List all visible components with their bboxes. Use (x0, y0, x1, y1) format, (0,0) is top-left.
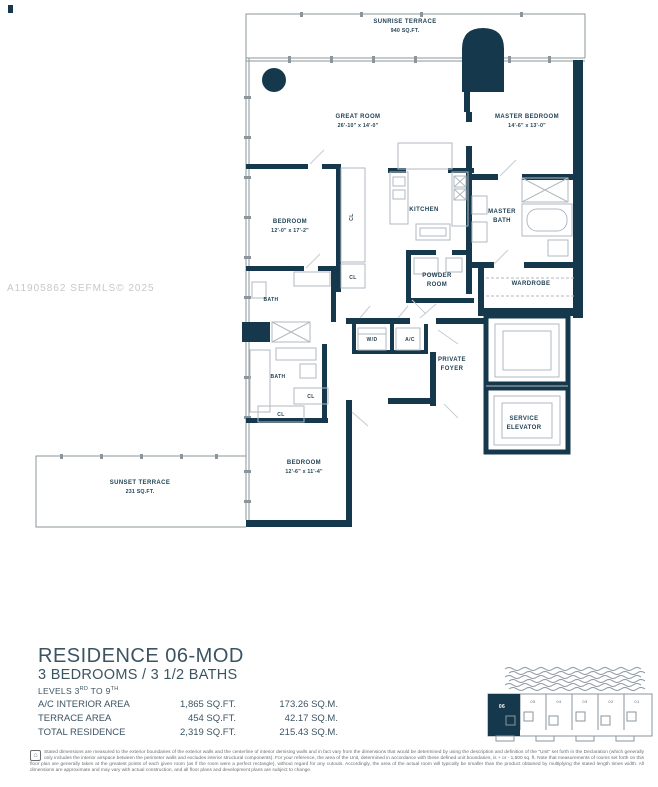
row-label: A/C INTERIOR AREA (38, 699, 156, 713)
building-outline (488, 694, 652, 741)
master-bedroom-label: MASTER BEDROOM (495, 114, 559, 120)
disclaimer: ⌂Stated dimensions are measured to the e… (30, 750, 644, 774)
floor-plan: SUNRISE TERRACE 940 SQ.FT. GREAT ROOM 26… (0, 0, 658, 560)
master-bath-label-1: MASTER (488, 209, 516, 215)
area-table: A/C INTERIOR AREA 1,865 SQ.FT. 173.26 SQ… (38, 699, 338, 741)
table-row: A/C INTERIOR AREA 1,865 SQ.FT. 173.26 SQ… (38, 699, 338, 713)
unit-03-label: 03 (582, 699, 588, 704)
row-label: TOTAL RESIDENCE (38, 727, 156, 741)
bedroom2-dims: 12'-0" x 17'-2" (271, 228, 309, 234)
row-sqft: 1,865 SQ.FT. (156, 699, 236, 713)
bedroom2-label: BEDROOM (273, 219, 307, 225)
service-elevator-label-1: SERVICE (509, 416, 538, 422)
residence-subtitle: 3 BEDROOMS / 3 1/2 BATHS (38, 667, 244, 684)
unit-05-label: 05 (530, 699, 536, 704)
bedroom3-label: BEDROOM (287, 460, 321, 466)
unit-02-label: 02 (608, 699, 614, 704)
sunset-terrace-label: SUNSET TERRACE (110, 480, 171, 486)
levels-sup-1: RD (80, 686, 89, 692)
disclaimer-text: Stated dimensions are measured to the ex… (30, 750, 644, 773)
table-row: TERRACE AREA 454 SQ.FT. 42.17 SQ.M. (38, 713, 338, 727)
closet-label-4: CL (277, 412, 284, 418)
residence-levels: LEVELS 3RD TO 9TH (38, 686, 244, 696)
kitchen-label: KITCHEN (409, 207, 438, 213)
highlighted-unit-06 (488, 694, 520, 736)
washer-dryer-label: W/D (367, 337, 378, 343)
powder-room-label-2: ROOM (427, 282, 447, 288)
key-plan-unit-labels: 06 05 04 03 02 01 (499, 699, 640, 710)
levels-text-2: TO 9 (88, 686, 110, 696)
title-block: RESIDENCE 06-MOD 3 BEDROOMS / 3 1/2 BATH… (38, 645, 244, 696)
water-waves (505, 668, 645, 691)
unit-04-label: 04 (556, 699, 562, 704)
great-room-label: GREAT ROOM (336, 114, 381, 120)
sunrise-terrace-label: SUNRISE TERRACE (373, 19, 436, 25)
bath2-label: BATH (270, 374, 285, 380)
row-sqft: 2,319 SQ.FT. (156, 727, 236, 741)
row-sqm: 42.17 SQ.M. (236, 713, 338, 727)
ac-closet-label: A/C (405, 337, 415, 343)
row-sqft: 454 SQ.FT. (156, 713, 236, 727)
levels-text-1: LEVELS 3 (38, 686, 80, 696)
unit-06-label: 06 (499, 704, 505, 710)
master-bedroom-dims: 14'-6" x 13'-0" (508, 123, 546, 129)
row-label: TERRACE AREA (38, 713, 156, 727)
unit-01-label: 01 (634, 699, 640, 704)
wardrobe-label: WARDROBE (512, 281, 551, 287)
table-row: TOTAL RESIDENCE 2,319 SQ.FT. 215.43 SQ.M… (38, 727, 338, 741)
equal-housing-icon: ⌂ (30, 750, 41, 761)
closet-label-2: CL (349, 275, 356, 281)
sunset-terrace-area: 231 SQ.FT. (126, 489, 155, 495)
great-room-dims: 26'-10" x 14'-0" (338, 123, 379, 129)
levels-sup-2: TH (111, 686, 119, 692)
bedroom3-dims: 12'-6" x 11'-4" (285, 469, 323, 475)
row-sqm: 173.26 SQ.M. (236, 699, 338, 713)
private-foyer-label-1: PRIVATE (438, 357, 466, 363)
service-elevator-label-2: ELEVATOR (507, 425, 542, 431)
closet-label-3: CL (307, 394, 314, 400)
residence-title: RESIDENCE 06-MOD (38, 645, 244, 667)
powder-room-label-1: POWDER (422, 273, 452, 279)
row-sqm: 215.43 SQ.M. (236, 727, 338, 741)
closet-label-1: CL (349, 213, 355, 220)
sunrise-terrace-area: 940 SQ.FT. (391, 28, 420, 34)
bath1-label: BATH (263, 297, 278, 303)
master-bath-label-2: BATH (493, 218, 511, 224)
private-foyer-label-2: FOYER (441, 366, 464, 372)
